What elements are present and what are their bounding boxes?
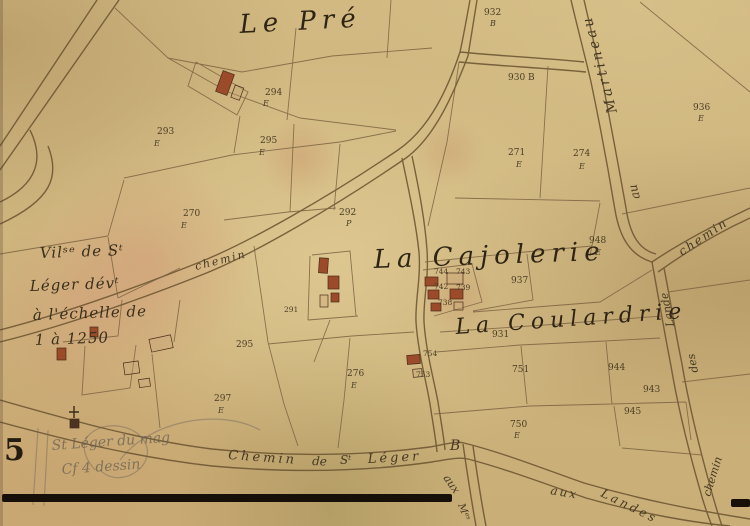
- parcel-number: 751: [512, 365, 529, 375]
- road-label-chemin-bottom: Chemin: [228, 448, 298, 468]
- building: [454, 302, 463, 310]
- parcel-number: 276: [347, 369, 364, 379]
- parcel-number: 739: [456, 283, 471, 292]
- road-label-de: de: [312, 454, 327, 469]
- sheet-number: 5: [4, 433, 25, 468]
- parcel-number: 743: [456, 267, 471, 276]
- road-label-st: Sᵗ: [340, 453, 351, 467]
- building: [331, 293, 339, 302]
- scale-note: Vilˢᵉ de Sᵗ Léger dévᵗ à l'échelle de 1 …: [29, 241, 148, 349]
- parcel-number: 291: [284, 305, 298, 314]
- parcel-section: E: [578, 162, 585, 171]
- building: [231, 85, 244, 100]
- road-label-chemin: chemin: [194, 248, 248, 273]
- parcel-number: 292: [339, 208, 356, 218]
- cross-icon: [69, 406, 79, 418]
- road-south-branch-2: [473, 446, 486, 526]
- place-label-la-cajolerie: La Cajolerie: [372, 237, 606, 275]
- road-label-m-branch: Mᵉˢ: [455, 501, 472, 522]
- parcel-number: 297: [214, 394, 231, 404]
- road-label-aux-landes-landes: Landes: [598, 486, 661, 526]
- map-drawing: Le Pré La Cajolerie La Coulardrie Vilˢᵉ …: [0, 0, 750, 526]
- pencil-note-2: Cf 4 dessin: [61, 457, 141, 478]
- cadastral-map-canvas: Le Pré La Cajolerie La Coulardrie Vilˢᵉ …: [0, 0, 750, 526]
- building: [318, 258, 328, 274]
- parcel-section: E: [262, 99, 269, 108]
- parcel-number: 944: [608, 363, 625, 373]
- parcel-number: 294: [265, 88, 282, 98]
- paper-edge-shadow: [0, 0, 3, 526]
- parcel-number: 932: [484, 8, 501, 18]
- road-top-left-2: [0, 0, 119, 170]
- scale-note-line4: 1 à 1250: [35, 328, 110, 349]
- parcel-section: E: [697, 114, 704, 123]
- road-branch-east-2: [459, 62, 586, 72]
- parcel-number: 750: [510, 420, 527, 430]
- parcel-section: E: [217, 406, 224, 415]
- road-ne-branch-2: [658, 218, 750, 272]
- parcel-number: 742: [434, 282, 449, 291]
- parcel-number: 295: [236, 340, 253, 350]
- parcel-number: 945: [624, 407, 641, 417]
- parcel-section: E: [153, 139, 160, 148]
- road-label-des: des: [684, 352, 700, 374]
- parcel-number: 936: [693, 103, 710, 113]
- scale-note-line3: à l'échelle de: [33, 302, 148, 324]
- building: [328, 276, 339, 289]
- parcel-section: E: [513, 431, 520, 440]
- ink-bar-fragment: [731, 499, 750, 507]
- place-label-la-coulardrie: La Coulardrie: [454, 299, 688, 340]
- parcel-number: 293: [157, 127, 174, 137]
- parcel-number: 270: [183, 209, 200, 219]
- road-label-aux-landes-aux: aux: [549, 483, 579, 502]
- ink-bar: [2, 494, 452, 502]
- parcel-section: P: [345, 219, 352, 228]
- scale-note-line1: Vilˢᵉ de Sᵗ: [40, 241, 125, 262]
- road-label-b-marker: B: [449, 438, 460, 454]
- scale-note-line2: Léger dévᵗ: [29, 274, 120, 295]
- parcel-number: 754: [423, 349, 438, 358]
- building: [407, 354, 421, 364]
- parcel-section: E: [350, 381, 357, 390]
- parcel-number: 753: [416, 370, 431, 379]
- road-branch-east: [460, 52, 584, 62]
- parcel-section: E: [515, 160, 522, 169]
- parcel-section: E: [594, 248, 601, 257]
- parcel-section: B: [489, 19, 496, 28]
- place-label-le-pre: Le Pré: [238, 4, 363, 40]
- building: [216, 71, 235, 96]
- road-label-martineau: Martineau: [579, 13, 621, 116]
- road-label-aux-branch: aux: [441, 472, 463, 496]
- parcel-number: 948: [589, 236, 606, 246]
- road-fork-left: [0, 130, 37, 202]
- parcel-section: E: [180, 221, 187, 230]
- pencil-note-1: St Léger du mag: [51, 430, 171, 454]
- parcel-number: 271: [508, 148, 525, 158]
- parcel-number: 930 B: [508, 73, 535, 83]
- building: [149, 335, 173, 352]
- parcel-section: E: [258, 148, 265, 157]
- parcel-number: 937: [511, 276, 528, 286]
- road-top-left: [0, 0, 97, 146]
- building: [320, 295, 328, 307]
- parcel-number: 931: [492, 330, 509, 340]
- parcel-number: 744: [434, 267, 449, 276]
- road-label-chemin-ne: chemin: [676, 215, 731, 258]
- parcel-number: 295: [260, 136, 277, 146]
- building: [123, 361, 140, 375]
- parcel-number: 943: [643, 385, 660, 395]
- road-label-au: au: [626, 183, 643, 201]
- parcel-number: 274: [573, 149, 590, 159]
- building: [57, 348, 66, 360]
- building: [138, 378, 150, 387]
- parcel-number: 738: [438, 298, 453, 307]
- parcel-boundary-lines: [0, 0, 750, 455]
- church-building: [70, 419, 79, 428]
- road-label-leger: Léger: [366, 449, 421, 467]
